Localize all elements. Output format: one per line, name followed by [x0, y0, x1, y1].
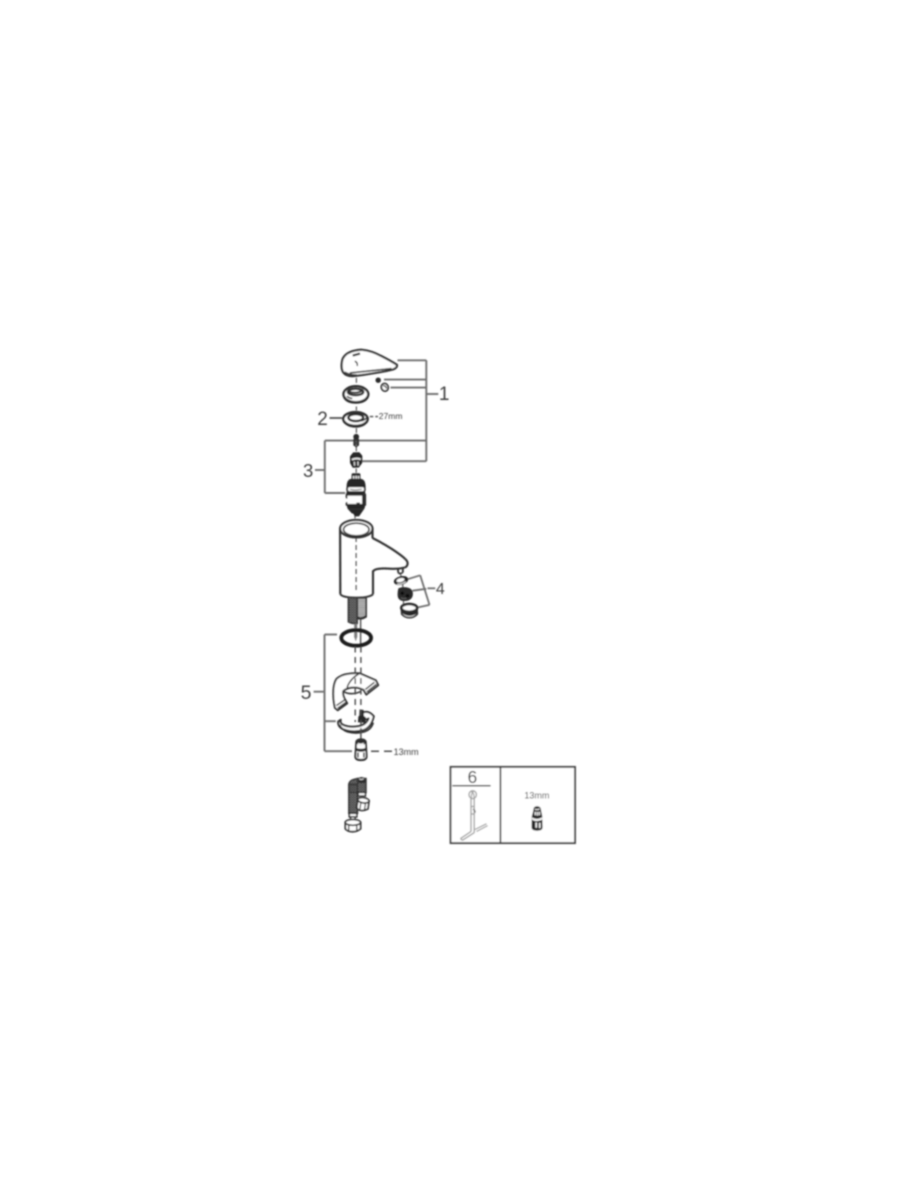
svg-text:2: 2	[317, 409, 328, 430]
svg-text:3: 3	[303, 460, 313, 481]
svg-text:1: 1	[439, 384, 450, 405]
svg-text:5: 5	[301, 682, 312, 704]
svg-text:13mm: 13mm	[524, 791, 549, 801]
svg-text:13mm: 13mm	[394, 747, 419, 757]
svg-text:4: 4	[436, 581, 445, 598]
svg-text:6: 6	[468, 767, 478, 787]
svg-text:27mm: 27mm	[379, 411, 403, 421]
